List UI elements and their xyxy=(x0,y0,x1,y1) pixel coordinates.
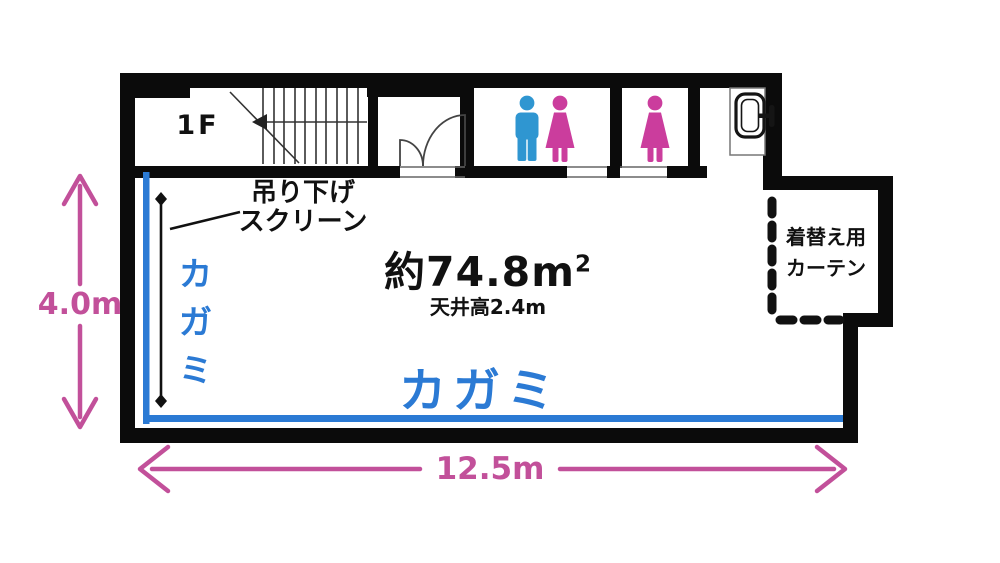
ceiling-height-label: 天井高2.4m xyxy=(368,291,608,320)
mirror-line-left xyxy=(143,172,150,424)
female-icon xyxy=(641,96,670,162)
hanging-screen-label-line2: スクリーン xyxy=(222,208,384,237)
changing-curtain-label-line2: カーテン xyxy=(786,253,896,284)
stair-treads xyxy=(263,88,358,164)
changing-curtain-label: 着替え用 カーテン xyxy=(786,222,896,284)
mirror-label-bottom: カガミ xyxy=(355,352,605,421)
area-label: 約74.8m2 xyxy=(358,238,618,298)
changing-curtain-label-line1: 着替え用 xyxy=(786,222,896,253)
width-dimension-label: 12.5m xyxy=(423,451,557,487)
male-icon xyxy=(516,96,539,161)
floor-plan: 1F 約74.8m2 天井高2.4m 吊り下げ スクリーン 着替え用 カーテン … xyxy=(0,0,1000,563)
hanging-screen-label: 吊り下げ スクリーン xyxy=(222,179,384,237)
area-superscript: 2 xyxy=(575,251,592,277)
hanging-screen-label-line1: 吊り下げ xyxy=(222,179,384,208)
female-icon xyxy=(546,96,575,162)
entrance-double-door xyxy=(400,115,465,166)
floor-label: 1F xyxy=(168,110,228,141)
area-value: 約74.8m xyxy=(384,248,575,296)
hanging-screen-line xyxy=(155,192,167,408)
height-dimension-label: 4.0m xyxy=(33,287,127,322)
staircase xyxy=(230,88,367,164)
mirror-label-left: カガミ xyxy=(168,256,217,426)
